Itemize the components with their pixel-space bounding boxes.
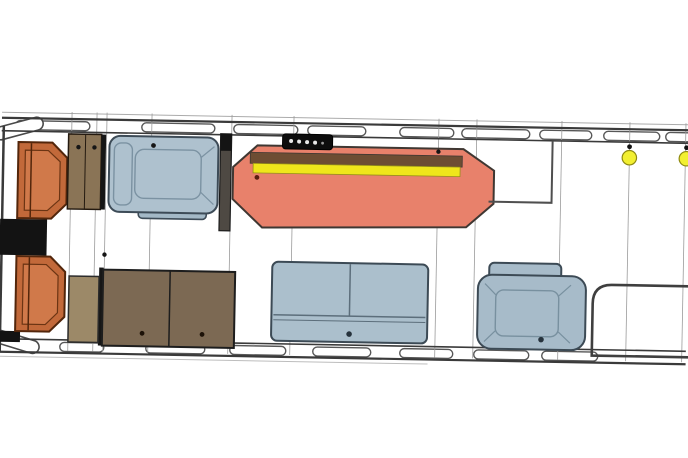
floorplan-canvas: [0, 0, 688, 458]
top-wall-window-2: [142, 123, 215, 133]
floorplan-stage: [0, 0, 688, 458]
ceiling-light-1-mount: [627, 144, 632, 149]
top-wall-window-3: [234, 124, 298, 134]
step-well-black: [0, 219, 47, 256]
marker-dot-aisle: [102, 252, 106, 256]
front-corner-window-top: [0, 116, 45, 141]
bottom-wall-window-1: [60, 342, 104, 352]
sofa-cushion-divider: [349, 264, 350, 316]
armchair-top-body: [108, 136, 218, 214]
kitchen-side-panel: [68, 276, 99, 343]
bottom-wall-window-7: [542, 351, 598, 361]
top-wall-window-8: [604, 131, 660, 141]
top-wall-window-7: [540, 130, 592, 140]
ceiling-light-1: [622, 150, 637, 165]
bottom-wall-window-3: [230, 345, 286, 355]
top-wall-window-9: [666, 132, 688, 141]
top-wall-window-6: [462, 129, 530, 139]
console-partition-cap: [220, 134, 231, 151]
ceiling-light-2-mount: [684, 145, 688, 150]
booth-outline: [592, 285, 688, 358]
step-well-black-lower: [0, 331, 20, 342]
bottom-wall-window-5: [400, 349, 453, 359]
floorplan-group: [0, 111, 688, 369]
top-wall-window-5: [400, 128, 454, 138]
ceiling-light-2: [679, 151, 688, 166]
galley-counter-outline: [489, 140, 553, 203]
bottom-wall-window-4: [313, 347, 371, 357]
bottom-wall-window-6: [474, 350, 529, 360]
